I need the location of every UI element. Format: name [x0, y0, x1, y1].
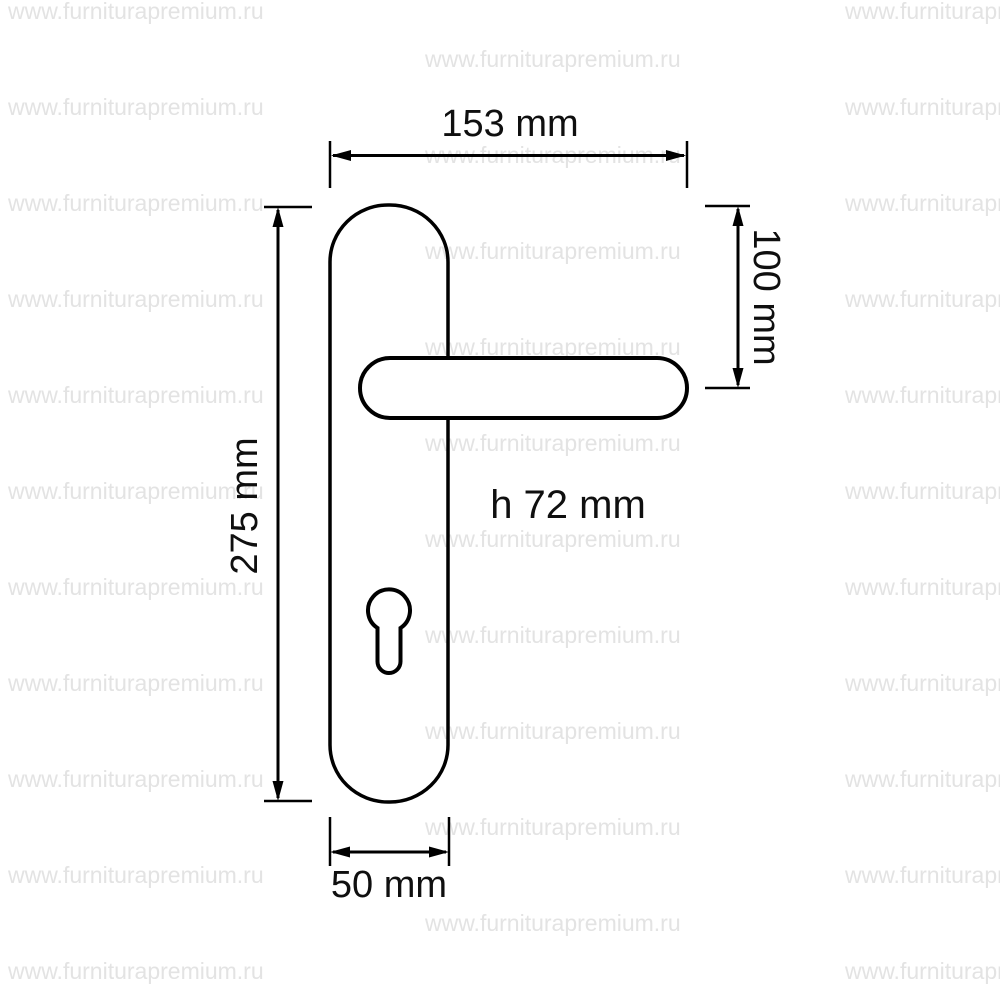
arrowhead-down — [273, 781, 284, 801]
arrowhead-down — [733, 368, 744, 388]
dimension-label-total-length: 153 mm — [441, 103, 578, 145]
lever-handle-outline — [360, 358, 687, 418]
backplate-outline — [330, 205, 448, 802]
arrowhead-right — [666, 150, 686, 161]
dimension-total-length: 153 mm — [330, 103, 687, 188]
arrowhead-left — [331, 150, 351, 161]
dimension-label-plate-height: 275 mm — [224, 437, 266, 574]
drawing-layer: 153 mm 100 mm 275 mm — [0, 0, 1000, 1000]
dimension-label-handle-offset: 100 mm — [745, 228, 787, 365]
arrowhead-up — [273, 207, 284, 227]
keyhole-outline — [368, 589, 410, 673]
arrowhead-right — [429, 847, 449, 858]
dimension-plate-width: 50 mm — [330, 817, 449, 906]
dimension-plate-height: 275 mm — [224, 207, 312, 801]
dimension-drawing-svg: 153 mm 100 mm 275 mm — [0, 0, 1000, 1000]
dimension-label-handle-height: h 72 mm — [490, 483, 646, 527]
dimension-handle-offset: 100 mm — [705, 206, 787, 388]
technical-drawing-canvas: www.furniturapremium.ruwww.furnituraprem… — [0, 0, 1000, 1000]
arrowhead-up — [733, 206, 744, 226]
arrowhead-left — [330, 847, 350, 858]
dimension-label-plate-width: 50 mm — [331, 864, 447, 906]
